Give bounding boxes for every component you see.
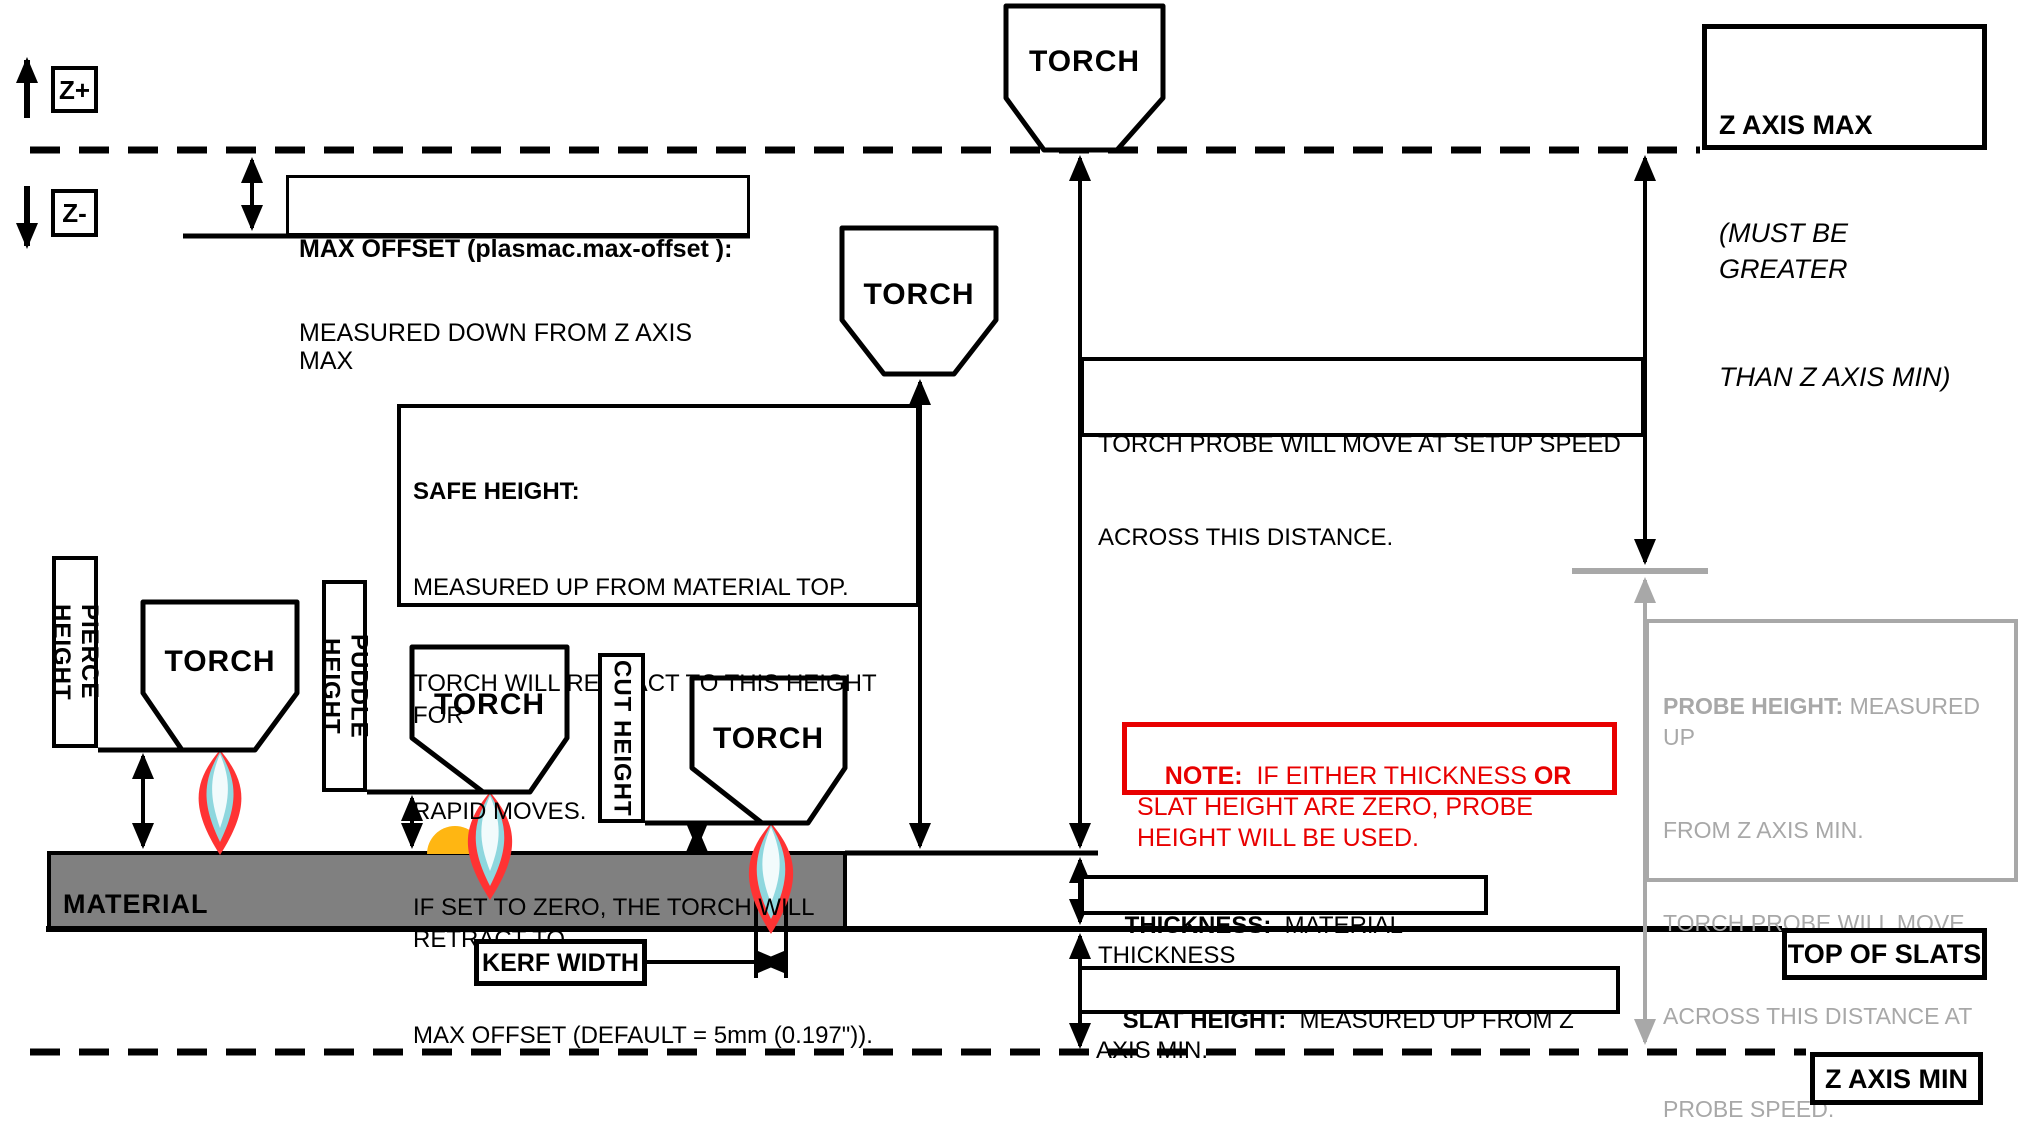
z-axis-min-label: Z AXIS MIN (1825, 1064, 1968, 1094)
note-label: NOTE: (1165, 762, 1243, 790)
kerf-width-box: KERF WIDTH (474, 939, 647, 986)
z-axis-max-note-line1: (MUST BE GREATER (1719, 215, 1970, 287)
torch-label-puddle: TORCH (412, 688, 567, 722)
torch-label-safe: TORCH (842, 278, 996, 312)
top-of-slats-box: TOP OF SLATS (1782, 928, 1987, 980)
max-offset-box: MAX OFFSET (plasmac.max-offset ): MEASUR… (286, 175, 750, 236)
pierce-flame-icon (199, 750, 242, 855)
note-text1: IF EITHER THICKNESS (1243, 762, 1534, 790)
cut-height-text: CUT HEIGHT (608, 660, 636, 817)
thickness-box: THICKNESS: MATERIAL THICKNESS (1080, 875, 1488, 915)
probe-height-line1: PROBE HEIGHT: MEASURED UP (1663, 691, 2000, 753)
puddle-height-label: PUDDLE HEIGHT (322, 580, 367, 792)
slat-height-box: SLAT HEIGHT: MEASURED UP FROM Z AXIS MIN… (1078, 966, 1620, 1014)
z-plus-text: Z+ (59, 75, 90, 105)
torch-probe-line2: ACROSS THIS DISTANCE. (1098, 522, 1627, 553)
probe-height-box: PROBE HEIGHT: MEASURED UP FROM Z AXIS MI… (1645, 619, 2018, 882)
z-axis-max-box: Z AXIS MAX (MUST BE GREATER THAN Z AXIS … (1702, 24, 1987, 150)
safe-height-title: SAFE HEIGHT: (413, 476, 904, 508)
probe-height-line4: ACROSS THIS DISTANCE AT (1663, 1001, 2000, 1032)
pierce-height-text: PIERCE HEIGHT (47, 560, 103, 744)
cut-height-label: CUT HEIGHT (598, 653, 645, 823)
kerf-width-label: KERF WIDTH (482, 948, 639, 978)
slat-height-title: SLAT HEIGHT: (1123, 1007, 1287, 1034)
torch-probe-line1: TORCH PROBE WILL MOVE AT SETUP SPEED (1098, 429, 1627, 460)
torch-label-pierce: TORCH (143, 645, 297, 679)
material-label: MATERIAL (63, 889, 208, 920)
safe-height-line3: RAPID MOVES. (413, 796, 904, 828)
top-of-slats-label: TOP OF SLATS (1788, 939, 1982, 969)
max-offset-description: MEASURED DOWN FROM Z AXIS MAX (299, 319, 737, 375)
z-minus-label: Z- (51, 189, 98, 237)
plasma-torch-height-diagram: Z+ Z- Z AXIS MAX (MUST BE GREATER THAN Z… (0, 0, 2038, 1145)
note-emphasis: OR (1534, 762, 1572, 790)
torch-label-cut: TORCH (692, 722, 845, 756)
pierce-height-label: PIERCE HEIGHT (52, 556, 98, 748)
z-axis-min-box: Z AXIS MIN (1810, 1052, 1983, 1105)
z-minus-text: Z- (62, 198, 87, 228)
safe-height-box: SAFE HEIGHT: MEASURED UP FROM MATERIAL T… (397, 404, 920, 607)
safe-height-line1: MEASURED UP FROM MATERIAL TOP. (413, 572, 904, 604)
z-axis-max-note-line2: THAN Z AXIS MIN) (1719, 359, 1970, 395)
max-offset-title: MAX OFFSET (plasmac.max-offset ): (299, 235, 737, 263)
torch-label-top: TORCH (1006, 45, 1163, 79)
puddle-height-text: PUDDLE HEIGHT (317, 584, 373, 788)
note-box: NOTE: IF EITHER THICKNESS OR SLAT HEIGHT… (1122, 722, 1617, 795)
safe-height-line5: MAX OFFSET (DEFAULT = 5mm (0.197")). (413, 1020, 904, 1052)
z-axis-max-title: Z AXIS MAX (1719, 107, 1970, 143)
probe-height-title: PROBE HEIGHT: (1663, 693, 1843, 719)
probe-height-line2: FROM Z AXIS MIN. (1663, 815, 2000, 846)
thickness-title: THICKNESS: (1125, 912, 1272, 939)
torch-probe-box: TORCH PROBE WILL MOVE AT SETUP SPEED ACR… (1080, 357, 1645, 437)
z-plus-label: Z+ (51, 66, 98, 113)
